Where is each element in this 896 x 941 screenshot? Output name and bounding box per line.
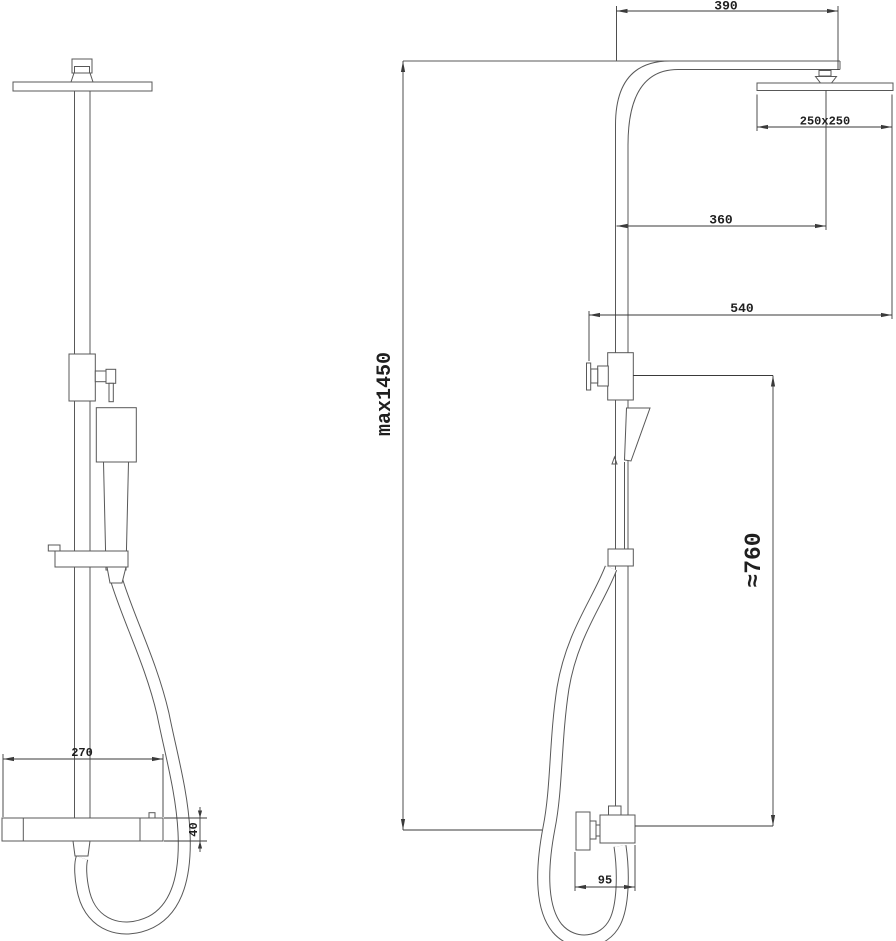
dim-valve-width: 270 xyxy=(3,746,163,817)
slide-block-side xyxy=(608,549,633,566)
hand-shower-front xyxy=(96,408,136,570)
dim-valve-height-label: 40 xyxy=(187,822,201,836)
valve-top-nub xyxy=(149,813,155,818)
dim-hose-height-label: ≈760 xyxy=(741,532,767,587)
shower-technical-drawing: 390 250x250 360 540 max1450 ≈760 xyxy=(0,0,896,941)
dim-valve-width-label: 270 xyxy=(71,746,93,760)
dim-overall-depth-label: 540 xyxy=(730,301,754,316)
dim-arm-projection-label: 390 xyxy=(714,0,738,14)
diverter-stem xyxy=(95,371,106,382)
diverter-valve-front xyxy=(69,354,116,402)
diverter-knob-side xyxy=(587,363,591,390)
ball-joint-side xyxy=(816,71,837,84)
handle-tip xyxy=(612,457,617,464)
valve-top-nub-side xyxy=(609,806,622,815)
ball-joint-front xyxy=(71,73,93,82)
bracket-nub xyxy=(48,545,60,551)
dim-head-size-label: 250x250 xyxy=(800,115,850,129)
hand-shower-side xyxy=(612,408,650,549)
valve-knob-side xyxy=(576,812,590,850)
hand-shower-head xyxy=(96,408,136,462)
technical-drawing-page: 390 250x250 360 540 max1450 ≈760 xyxy=(0,0,896,941)
arm-bend-inner xyxy=(628,70,678,146)
diverter-valve-side xyxy=(587,353,634,400)
valve-stem-side xyxy=(590,821,596,839)
diverter-knob xyxy=(106,369,116,383)
diverter-collar xyxy=(598,366,609,386)
front-view xyxy=(2,59,184,928)
head-connector-front xyxy=(71,59,93,82)
shower-hose-front xyxy=(81,578,185,928)
valve-collar-side xyxy=(596,825,600,836)
riser-pipe-front xyxy=(75,91,91,818)
dim-hose-height: ≈760 xyxy=(633,376,773,827)
mixer-valve-front xyxy=(2,813,163,856)
diverter-stem-side xyxy=(591,369,598,383)
overhead-shower-head-front xyxy=(13,82,152,91)
hose-outlet xyxy=(73,841,90,856)
overhead-shower-head-side xyxy=(757,83,893,91)
dim-max-height-label: max1450 xyxy=(374,352,397,436)
dim-head-center-offset: 360 xyxy=(617,213,827,228)
dim-arm-projection: 390 xyxy=(617,0,839,70)
dim-overall-depth: 540 xyxy=(589,301,892,361)
dim-head-size: 250x250 xyxy=(757,95,892,320)
dim-head-center-offset-label: 360 xyxy=(709,213,733,228)
dim-max-height: max1450 xyxy=(374,61,542,830)
side-view xyxy=(403,61,893,941)
holder-wedge xyxy=(625,408,651,461)
riser-pipe-side xyxy=(616,125,629,815)
dim-outlet-offset-label: 95 xyxy=(598,874,612,888)
arm-bend-outer xyxy=(616,61,671,125)
diverter-lever xyxy=(109,383,113,401)
mixer-valve-side xyxy=(576,806,635,850)
